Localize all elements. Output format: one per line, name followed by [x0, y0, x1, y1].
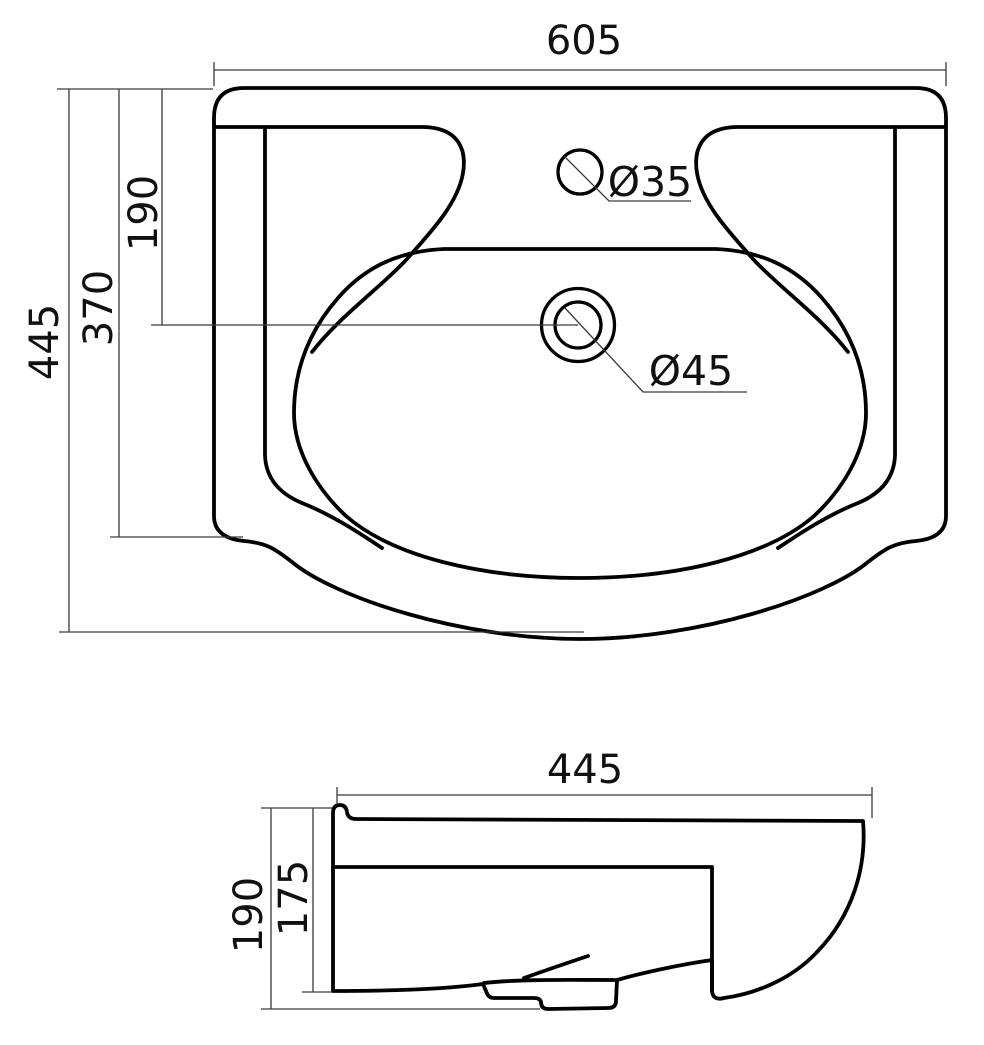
side-view: [333, 805, 864, 1009]
bowl-oval-outline: [294, 249, 866, 578]
dim-label-175-side: 175: [271, 860, 317, 936]
technical-drawing-page: 605 445 370 190 Ø35 Ø45: [0, 0, 984, 1045]
dim-label-605: 605: [546, 18, 622, 64]
rim-ledge-right-curve: [696, 127, 946, 352]
drain-pipe-cut-line: [524, 956, 588, 978]
dim-label-190-side: 190: [226, 877, 272, 953]
drain-hole-label: Ø45: [649, 347, 733, 395]
top-view: [214, 88, 946, 639]
dim-label-370: 370: [76, 270, 122, 346]
dim-label-445-side: 445: [547, 747, 623, 793]
drain-trap-top-edge: [484, 980, 616, 983]
dim-label-190-top: 190: [121, 175, 167, 251]
faucet-hole-label: Ø35: [608, 158, 692, 206]
top-view-outer-outline: [214, 88, 946, 639]
washbasin-technical-drawing: 605 445 370 190 Ø35 Ø45: [0, 0, 984, 1045]
side-view-inner-edge: [333, 867, 712, 991]
dim-label-445-top: 445: [22, 304, 68, 380]
top-view-dimensions: 605 445 370 190 Ø35 Ø45: [22, 18, 946, 632]
rim-ledge-left-curve: [214, 127, 464, 352]
